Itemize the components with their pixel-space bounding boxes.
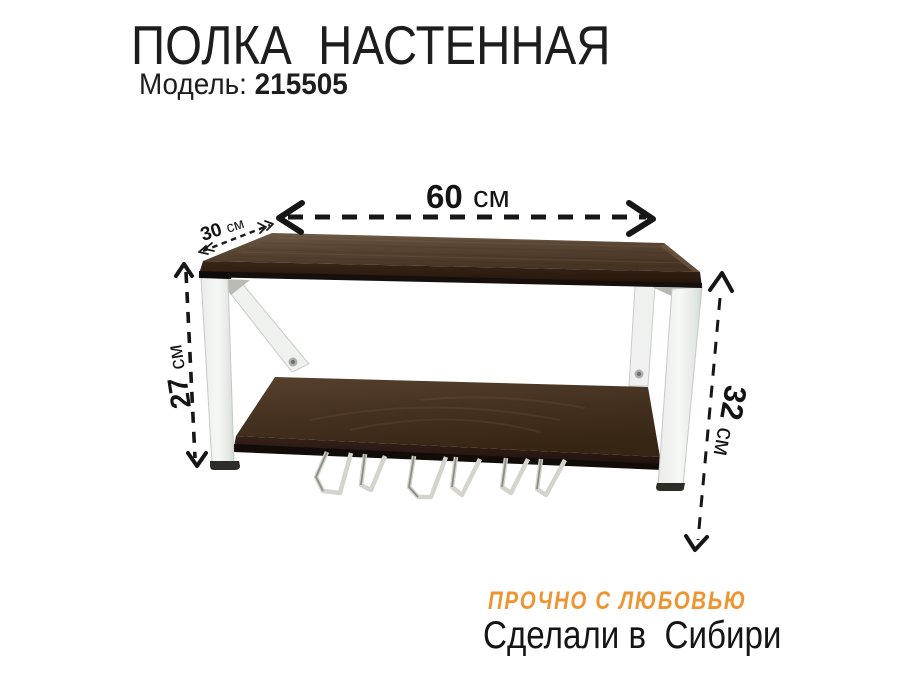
svg-text:32 см: 32 см	[707, 383, 754, 460]
svg-text:60: 60	[426, 178, 463, 215]
svg-text:см: см	[473, 179, 510, 214]
svg-text:30 см: 30 см	[198, 212, 247, 246]
